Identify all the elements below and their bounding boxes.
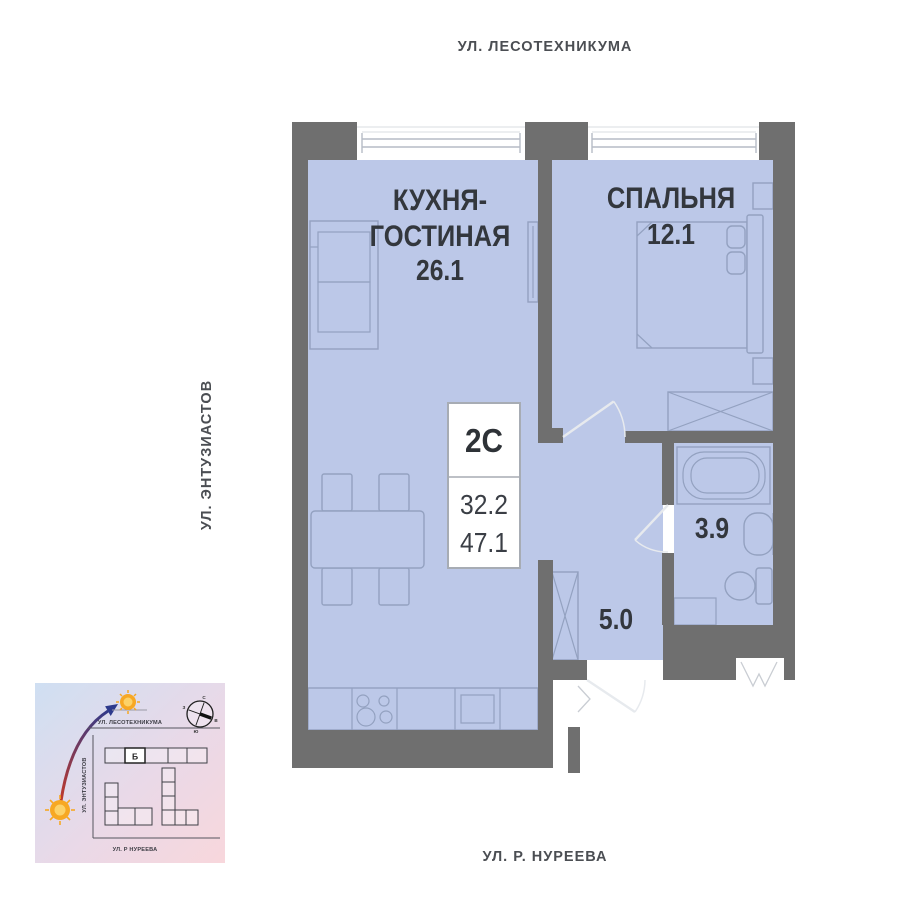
hallway-area: 5.0 xyxy=(599,603,633,635)
street-label-left: УЛ. ЭНТУЗИАСТОВ xyxy=(199,380,215,530)
room-name: КУХНЯ- xyxy=(393,183,487,216)
nightstand-bottom xyxy=(753,358,773,384)
site-minimap: С В Ю З УЛ. ЛЕСОТЕХНИКУМА УЛ. ЭНТУЗИАСТО… xyxy=(35,683,225,863)
kitchen-counter xyxy=(308,688,538,730)
entrance-door xyxy=(578,680,645,712)
total-area-value: 47.1 xyxy=(460,527,508,559)
bathtub xyxy=(677,447,770,504)
minimap-street-bottom: УЛ. Р НУРЕЕВА xyxy=(113,847,158,853)
compass-w: З xyxy=(183,705,186,710)
floorplan-svg: УЛ. ЛЕСОТЕХНИКУМА УЛ. ЭНТУЗИАСТОВ УЛ. Р.… xyxy=(0,0,900,900)
unit-type-label: 2С xyxy=(465,423,503,460)
compass-s: Ю xyxy=(194,729,199,734)
radiator xyxy=(528,222,538,302)
living-area-value: 32.2 xyxy=(460,489,508,521)
building-label: Б xyxy=(132,752,138,762)
window-bedroom xyxy=(588,127,759,153)
minimap-street-top: УЛ. ЛЕСОТЕХНИКУМА xyxy=(98,720,162,726)
room-name: ГОСТИНАЯ xyxy=(370,219,511,252)
nightstand-top xyxy=(753,183,773,209)
room-area: 12.1 xyxy=(647,218,695,250)
highlighted-building-cell: Б xyxy=(125,748,145,763)
hall-wardrobe xyxy=(552,572,578,660)
bathroom-sink xyxy=(744,513,773,555)
street-label-top: УЛ. ЛЕСОТЕХНИКУМА xyxy=(458,39,633,55)
bedroom-wardrobe xyxy=(668,392,773,431)
room-name: СПАЛЬНЯ xyxy=(607,181,735,214)
window-kitchen xyxy=(357,127,525,153)
minimap-street-left: УЛ. ЭНТУЗИАСТОВ xyxy=(82,757,88,812)
apartment-info-box: 2С 32.2 47.1 xyxy=(448,403,520,568)
floorplan-page: УЛ. ЛЕСОТЕХНИКУМА УЛ. ЭНТУЗИАСТОВ УЛ. Р.… xyxy=(0,0,900,900)
street-label-bottom: УЛ. Р. НУРЕЕВА xyxy=(483,849,608,865)
room-area: 26.1 xyxy=(416,254,464,286)
sofa xyxy=(310,221,378,349)
bathroom-area: 3.9 xyxy=(695,512,729,544)
